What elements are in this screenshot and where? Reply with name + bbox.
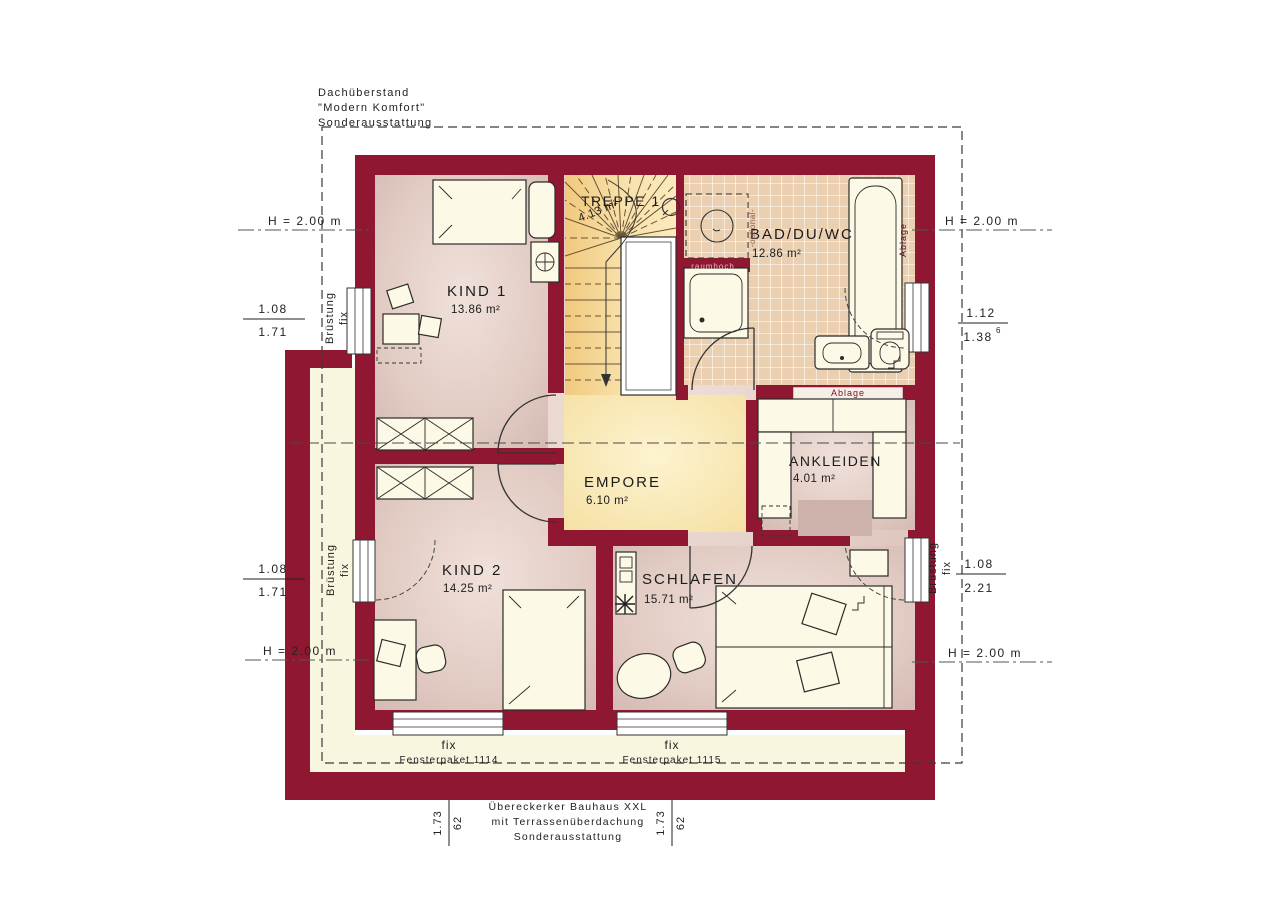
room-label-empore: EMPORE [584, 474, 661, 491]
room-area-kind1: 13.86 m² [451, 304, 500, 316]
dim-bottom-left-a: 1.73 [432, 810, 444, 835]
stair-void [621, 237, 676, 395]
room-label-kind1: KIND 1 [447, 283, 507, 300]
dim-right-top-sup: 6 [996, 326, 1001, 335]
window1-package-label: Fensterpaket 1114 [400, 755, 499, 766]
nightstand [850, 550, 888, 576]
dim-left-bottom-den: 1.71 [258, 585, 287, 599]
raumhoch-label: raumhoch [691, 262, 735, 271]
wardrobe-left [758, 432, 791, 518]
floor-plan-page: Dachüberstand "Modern Komfort" Sonderaus… [0, 0, 1280, 906]
room-label-schlafen: SCHLAFEN [642, 571, 738, 588]
h-label-top-left: H = 2.00 m [268, 214, 342, 228]
room-area-empore: 6.10 m² [586, 495, 629, 507]
pillow [529, 182, 555, 238]
dim-left-bottom-num: 1.08 [258, 562, 287, 576]
double-bed [716, 586, 892, 708]
window2-fix-label: fix [665, 738, 680, 752]
bottom-annotation-line2: mit Terrassenüberdachung [492, 816, 645, 828]
room-label-ankleiden: ANKLEIDEN [789, 453, 882, 469]
h-label-top-right: H = 2.00 m [945, 214, 1019, 228]
ablage-tub-label: Ablage [898, 223, 908, 257]
dim-bottom-right-b: 62 [675, 816, 687, 830]
room-label-kind2: KIND 2 [442, 562, 502, 579]
h-label-bottom-left: H = 2.00 m [263, 644, 337, 658]
bed-kind2 [503, 590, 585, 710]
bruestung-left-bottom-1: Brüstung [325, 544, 337, 596]
bruestung-left-top-2: fix [338, 311, 350, 325]
roof-annotation-line2: "Modern Komfort" [318, 102, 425, 114]
dim-bottom-left-b: 62 [452, 816, 464, 830]
floor-plan-drawing: Dachüberstand "Modern Komfort" Sonderaus… [0, 0, 1280, 906]
bottom-annotation-line3: Sonderausstattung [514, 831, 623, 843]
window2-package-label: Fensterpaket 1115 [623, 755, 722, 766]
room-label-bad: BAD/DU/WC [750, 226, 854, 243]
ablage-shelf-label: Ablage [831, 388, 865, 398]
dim-right-top-den: 1.38 [963, 330, 992, 344]
bruestung-left-bottom-2: fix [339, 563, 351, 577]
optional-label: -optional- [748, 209, 757, 247]
room-area-ankleiden: 4.01 m² [793, 473, 836, 485]
wardrobe-right [873, 432, 906, 518]
shower [684, 268, 748, 338]
window-schlafen-right [905, 538, 929, 602]
dim-right-bottom-num: 1.08 [964, 557, 993, 571]
dim-left-top-den: 1.71 [258, 325, 287, 339]
room-area-bad: 12.86 m² [752, 248, 801, 260]
window-package-1115 [617, 712, 727, 735]
dim-right-top-num: 1.12 [966, 306, 995, 320]
window-kind2-left [353, 540, 375, 602]
washbasin [815, 336, 869, 369]
bruestung-left-top-1: Brüstung [324, 292, 336, 344]
room-area-schlafen: 15.71 m² [644, 594, 693, 606]
plant-icon [615, 594, 635, 614]
bottom-annotation-line1: Übereckerker Bauhaus XXL [489, 801, 648, 813]
nightstand-vent [531, 242, 559, 282]
wardrobe-top [758, 399, 906, 432]
h-label-bottom-right: H = 2.00 m [948, 646, 1022, 660]
window-kind1-left [347, 288, 371, 354]
empore-floor [564, 395, 746, 532]
toilet [871, 329, 909, 369]
bed-kind1 [433, 180, 555, 244]
shelf-plant [615, 552, 636, 614]
bruestung-right-bottom-2: fix [941, 561, 953, 575]
window-package-1114 [393, 712, 503, 735]
room-area-kind2: 14.25 m² [443, 583, 492, 595]
dim-left-top-num: 1.08 [258, 302, 287, 316]
dim-bottom-right-a: 1.73 [655, 810, 667, 835]
bruestung-right-bottom-1: Brüstung [927, 542, 939, 594]
dim-right-bottom-den: 2.21 [964, 581, 993, 595]
roof-annotation-line1: Dachüberstand [318, 87, 410, 99]
rug [798, 500, 872, 536]
window1-fix-label: fix [442, 738, 457, 752]
roof-annotation-line3: Sonderausstattung [318, 117, 432, 129]
